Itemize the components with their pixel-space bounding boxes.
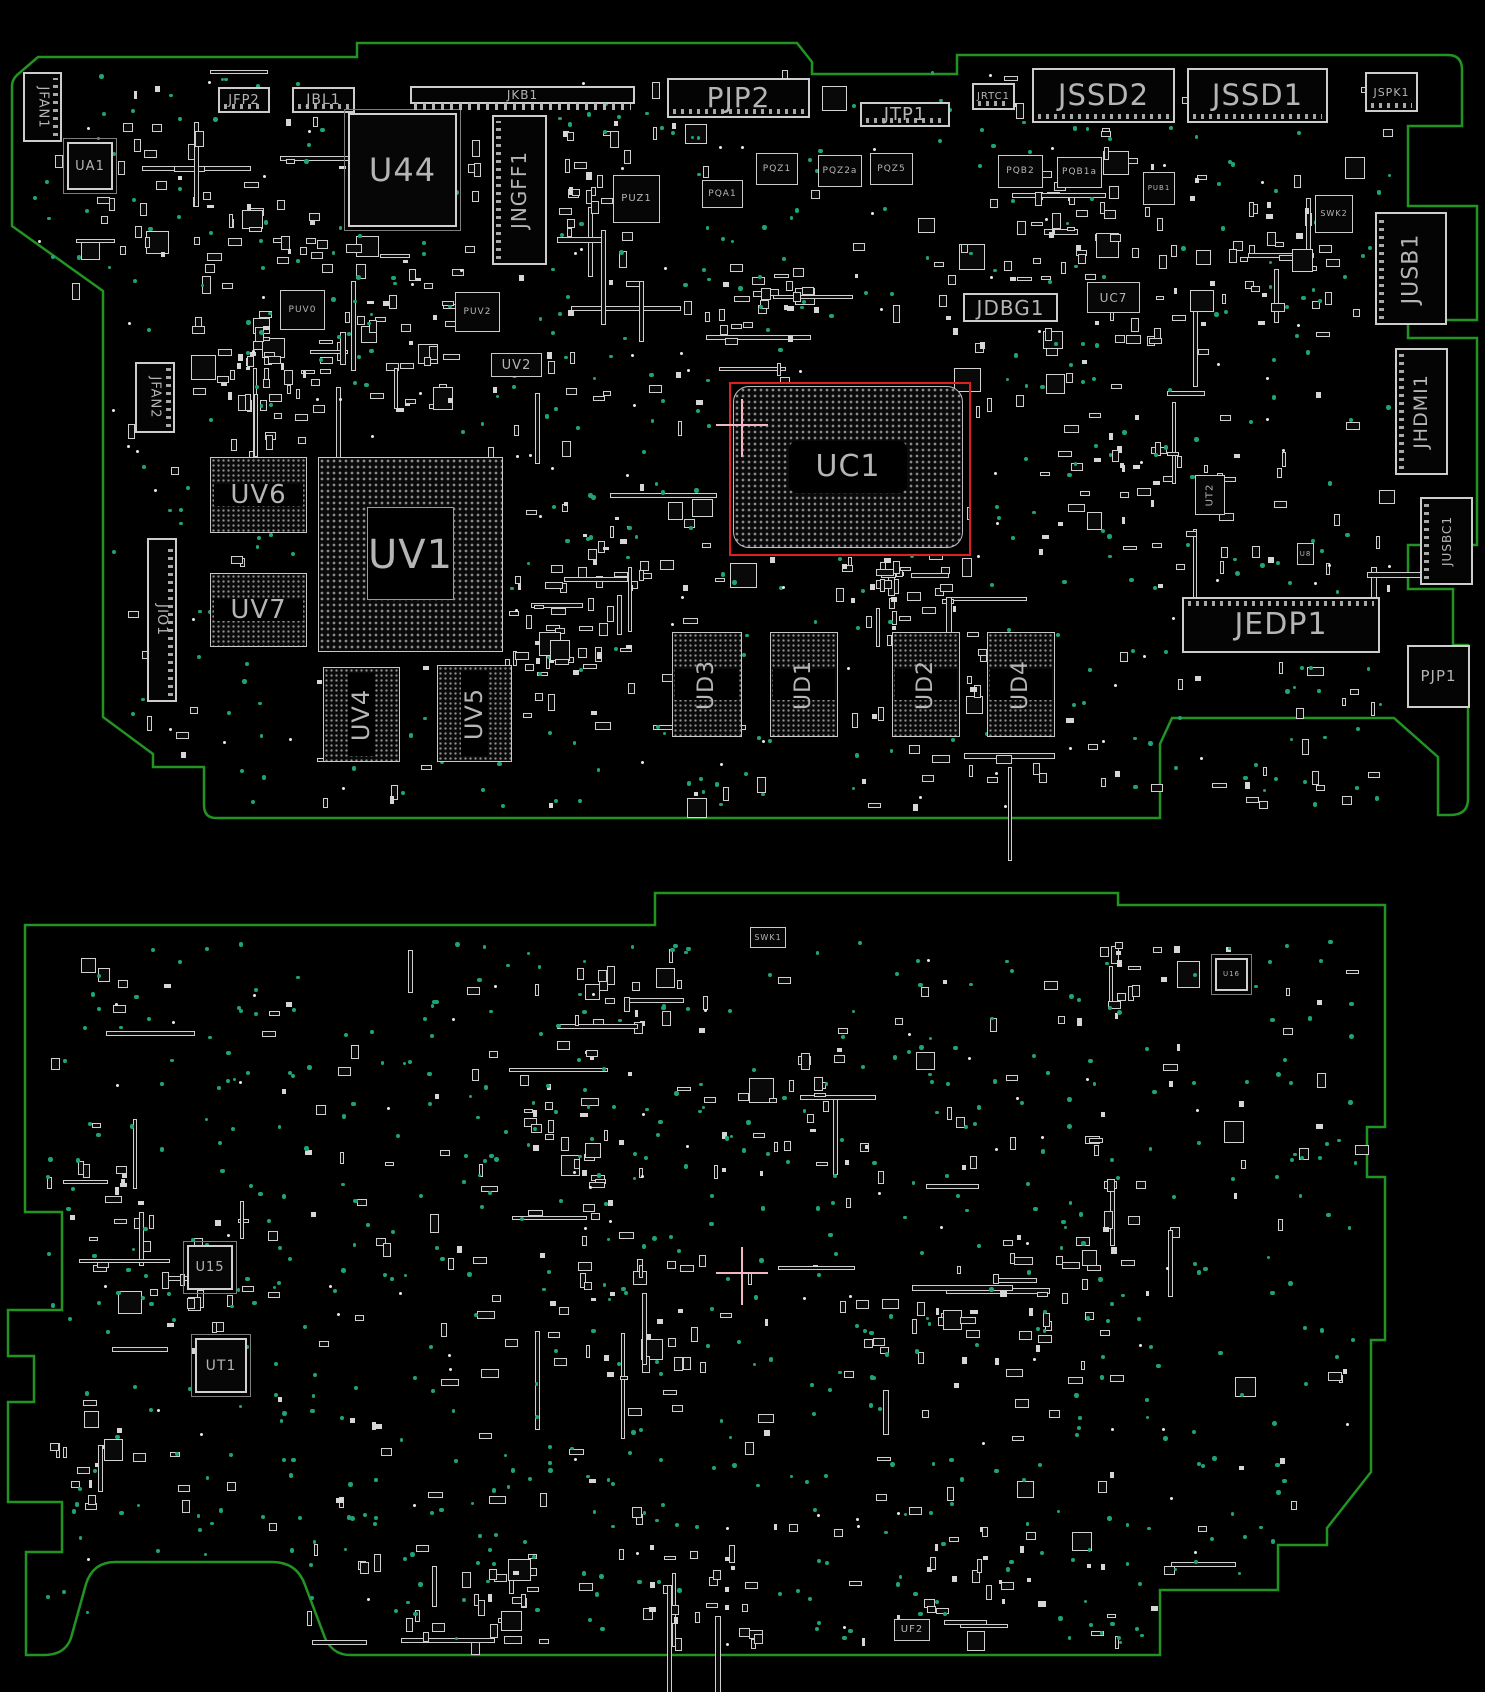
- crosshair-v-line: [741, 399, 743, 457]
- crosshair-v-line: [741, 1247, 743, 1305]
- markers-layer: [0, 0, 1485, 1692]
- highlight-rect-uc1[interactable]: [729, 382, 971, 556]
- boardview-canvas: JFAN1UA1JFP2JBL1U44JKB1JNGFF1PJP2JTP1JRT…: [0, 0, 1485, 1692]
